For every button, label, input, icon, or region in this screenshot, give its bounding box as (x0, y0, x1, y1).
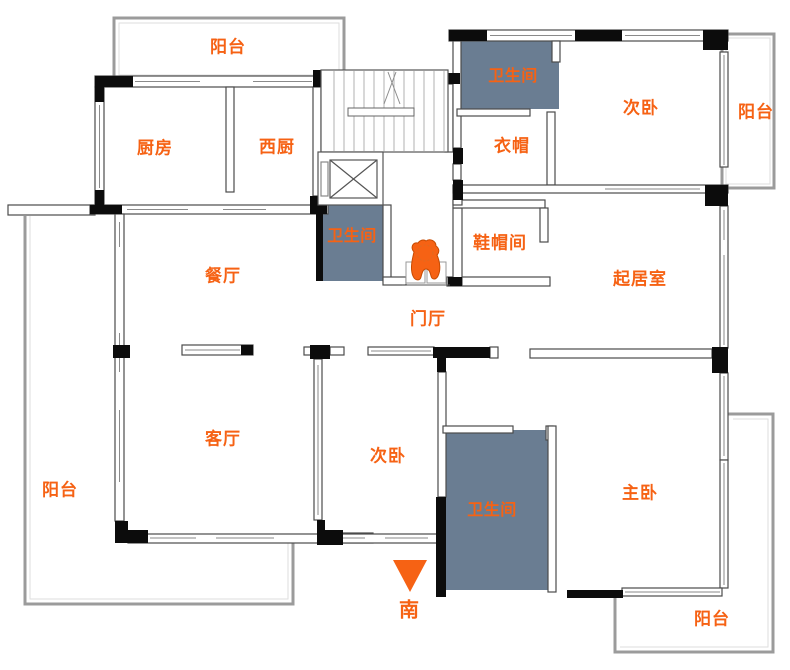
south-arrow-icon (393, 560, 427, 592)
floor-plan-drawing (0, 0, 790, 670)
room-label-dining: 餐厅 (205, 262, 241, 287)
room-label-living: 起居室 (613, 265, 667, 290)
room-label-kitchen: 厨房 (137, 134, 173, 159)
room-label-bath-top: 卫生间 (488, 62, 538, 86)
room-label-balcony-bottom: 阳台 (694, 605, 730, 630)
balcony-left-outline (25, 216, 293, 604)
room-label-parlor: 客厅 (205, 425, 241, 450)
room-label-bedroom-top: 次卧 (623, 94, 659, 119)
room-label-hall: 门厅 (410, 305, 446, 330)
compass-south-label: 南 (399, 594, 419, 623)
stairs-handrail (348, 108, 414, 116)
room-label-master: 主卧 (622, 479, 658, 504)
room-label-bath-mid: 卫生间 (327, 222, 377, 246)
room-label-balcony-top: 阳台 (210, 33, 246, 58)
person-icon (411, 240, 439, 280)
room-label-bath-master: 卫生间 (467, 496, 517, 520)
room-label-bedroom-bottom: 次卧 (370, 442, 406, 467)
room-label-balcony-left: 阳台 (42, 476, 78, 501)
room-label-west-kitchen: 西厨 (259, 133, 295, 158)
room-label-cloak: 衣帽 (494, 132, 530, 157)
stairs-icon (321, 70, 448, 152)
room-label-balcony-right: 阳台 (738, 98, 774, 123)
elevator-icon (318, 152, 383, 205)
room-label-shoe-room: 鞋帽间 (473, 229, 527, 254)
floor-plan: 阳台 厨房 西厨 卫生间 卫生间 衣帽 次卧 阳台 鞋帽间 餐厅 起居室 门厅 … (0, 0, 790, 670)
